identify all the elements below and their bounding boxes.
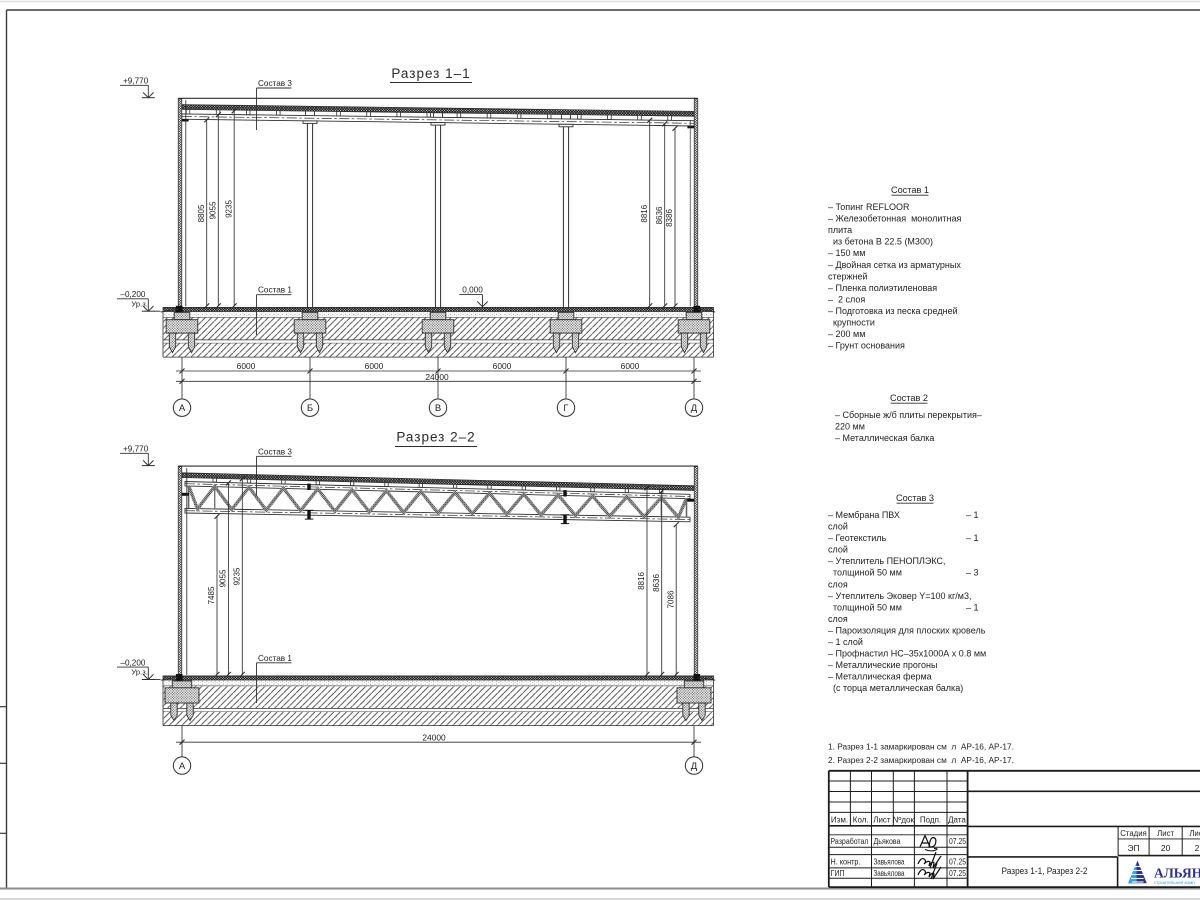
- svg-text:– Сборные ж/б плиты перекрытия: – Сборные ж/б плиты перекрытия–: [835, 410, 982, 420]
- svg-text:А: А: [179, 761, 186, 772]
- svg-text:07.25: 07.25: [949, 869, 967, 878]
- svg-text:7086: 7086: [666, 590, 675, 608]
- svg-text:– 200 мм: – 200 мм: [828, 329, 865, 339]
- svg-text:Дьякова: Дьякова: [874, 837, 902, 846]
- svg-text:А: А: [179, 403, 186, 414]
- svg-text:24000: 24000: [425, 372, 449, 382]
- svg-text:Ур.з.: Ур.з.: [131, 668, 147, 677]
- svg-text:Разрез 1–1: Разрез 1–1: [391, 66, 470, 81]
- svg-text:–0,200: –0,200: [120, 658, 145, 667]
- svg-text:– Утеплитель ПЕНОПЛЭКС,: – Утеплитель ПЕНОПЛЭКС,: [828, 556, 946, 566]
- svg-text:Лист: Лист: [1157, 829, 1174, 838]
- svg-text:+9,770: +9,770: [123, 77, 149, 86]
- svg-text:07.25: 07.25: [949, 837, 967, 846]
- svg-text:– Металлическая балка: – Металлическая балка: [835, 433, 934, 443]
- svg-text:Ур.з.: Ур.з.: [131, 299, 147, 308]
- svg-text:– Пленка полиэтиленовая: – Пленка полиэтиленовая: [828, 283, 937, 293]
- svg-text:Б: Б: [307, 403, 313, 414]
- svg-text:0,000: 0,000: [462, 286, 483, 295]
- svg-text:слоя: слоя: [828, 614, 848, 624]
- svg-text:ГИП: ГИП: [831, 869, 845, 878]
- svg-text:8816: 8816: [637, 572, 646, 590]
- svg-text:– Пароизоляция для плоских кро: – Пароизоляция для плоских кровель: [828, 626, 986, 636]
- svg-text:– Грунт основания: – Грунт основания: [828, 341, 905, 351]
- svg-text:– Мембрана ПВХ: – Мембрана ПВХ: [828, 510, 900, 520]
- svg-text:(с торца металлическая балка): (с торца металлическая балка): [828, 683, 963, 693]
- svg-text:– Металлические прогоны: – Металлические прогоны: [828, 660, 937, 670]
- svg-text:Состав 3: Состав 3: [258, 79, 292, 88]
- svg-text:Завьялова: Завьялова: [874, 858, 906, 867]
- svg-text:6000: 6000: [621, 361, 640, 371]
- svg-text:Разрез 1-1, Разрез 2-2: Разрез 1-1, Разрез 2-2: [1002, 866, 1088, 876]
- svg-text:плита: плита: [828, 225, 852, 235]
- svg-text:1. Разрез 1-1 замаркирован см: 1. Разрез 1-1 замаркирован см л АР-16, А…: [828, 742, 1014, 752]
- svg-text:Д: Д: [691, 761, 698, 772]
- svg-text:– Утеплитель Эковер Y=100 кг/м: – Утеплитель Эковер Y=100 кг/м3,: [828, 591, 971, 601]
- svg-text:+9,770: +9,770: [123, 445, 149, 454]
- svg-text:Дата: Дата: [948, 816, 966, 825]
- svg-text:8386: 8386: [665, 209, 674, 227]
- svg-text:Завьялова: Завьялова: [874, 869, 906, 878]
- svg-text:– Профнастил НС–35х1000А х 0.8: – Профнастил НС–35х1000А х 0.8 мм: [828, 649, 986, 659]
- svg-text:Г: Г: [563, 403, 568, 414]
- svg-text:8805: 8805: [197, 204, 206, 222]
- svg-text:– Топинг REFLOOR: – Топинг REFLOOR: [828, 202, 910, 212]
- svg-text:9055: 9055: [209, 201, 218, 219]
- svg-text:слой: слой: [828, 545, 848, 555]
- svg-text:–0,200: –0,200: [120, 290, 145, 299]
- svg-text:8636: 8636: [652, 574, 661, 592]
- svg-text:Состав 3: Состав 3: [258, 447, 292, 456]
- svg-text:– Железобетонная монолитная: – Железобетонная монолитная: [828, 214, 961, 224]
- svg-text:Разработал: Разработал: [831, 837, 869, 846]
- svg-text:24000: 24000: [422, 733, 446, 743]
- svg-text:Н. контр.: Н. контр.: [831, 858, 861, 867]
- svg-text:– Подготовка из песка средней: – Подготовка из песка средней: [828, 306, 958, 316]
- svg-text:8636: 8636: [655, 206, 664, 224]
- svg-text:толщиной 50 мм: толщиной 50 мм: [828, 602, 902, 612]
- svg-text:Изм.: Изм.: [831, 816, 848, 825]
- svg-text:– 1: – 1: [966, 602, 979, 612]
- svg-text:220 мм: 220 мм: [835, 422, 865, 432]
- svg-text:стержней: стержней: [828, 271, 868, 281]
- svg-text:Кол.: Кол.: [853, 816, 869, 825]
- svg-text:– 1: – 1: [966, 533, 979, 543]
- svg-text:АЛЬЯН: АЛЬЯН: [1154, 866, 1200, 881]
- svg-text:9055: 9055: [219, 569, 228, 587]
- svg-text:Д: Д: [691, 403, 698, 414]
- svg-text:Nºдок: Nºдок: [893, 816, 915, 825]
- svg-text:Лист: Лист: [873, 816, 891, 825]
- svg-text:20: 20: [1161, 843, 1171, 853]
- svg-text:крупности: крупности: [828, 318, 875, 328]
- svg-text:2: 2: [1195, 843, 1200, 853]
- svg-text:ЭП: ЭП: [1127, 843, 1139, 853]
- svg-text:Состав 3: Состав 3: [896, 493, 934, 503]
- svg-text:6000: 6000: [493, 361, 512, 371]
- svg-text:строительная комп: строительная комп: [1154, 880, 1195, 885]
- svg-text:из бетона В 22.5 (М300): из бетона В 22.5 (М300): [828, 237, 933, 247]
- svg-text:– Геотекстиль: – Геотекстиль: [828, 533, 887, 543]
- svg-text:8816: 8816: [640, 204, 649, 222]
- svg-text:– 2 слоя: – 2 слоя: [828, 294, 865, 304]
- svg-text:Подп.: Подп.: [920, 816, 941, 825]
- svg-text:Лис: Лис: [1189, 829, 1200, 838]
- svg-text:07.25: 07.25: [949, 858, 967, 867]
- svg-text:7485: 7485: [207, 586, 216, 604]
- svg-text:9235: 9235: [233, 567, 242, 585]
- svg-text:Состав 1: Состав 1: [891, 185, 929, 195]
- svg-text:– 150 мм: – 150 мм: [828, 248, 865, 258]
- svg-text:2. Разрез 2-2 замаркирован см: 2. Разрез 2-2 замаркирован см л АР-16, А…: [828, 755, 1014, 765]
- svg-text:Разрез 2–2: Разрез 2–2: [396, 430, 475, 445]
- svg-text:толщиной 50 мм: толщиной 50 мм: [828, 568, 902, 578]
- svg-text:Состав 2: Состав 2: [890, 393, 928, 403]
- svg-text:Состав 1: Состав 1: [258, 286, 292, 295]
- svg-text:– 1: – 1: [966, 510, 979, 520]
- svg-text:6000: 6000: [237, 361, 256, 371]
- svg-text:– 3: – 3: [966, 568, 979, 578]
- svg-text:слой: слой: [828, 522, 848, 532]
- svg-text:– Металлическая ферма: – Металлическая ферма: [828, 672, 932, 682]
- svg-text:Состав 1: Состав 1: [258, 654, 292, 663]
- svg-text:6000: 6000: [365, 361, 384, 371]
- svg-text:слоя: слоя: [828, 579, 848, 589]
- svg-text:9235: 9235: [224, 200, 233, 218]
- svg-text:В: В: [435, 403, 441, 414]
- svg-text:– Двойная сетка из арматурных: – Двойная сетка из арматурных: [828, 260, 961, 270]
- svg-text:– 1 слой: – 1 слой: [828, 637, 863, 647]
- svg-text:Стадия: Стадия: [1120, 829, 1147, 838]
